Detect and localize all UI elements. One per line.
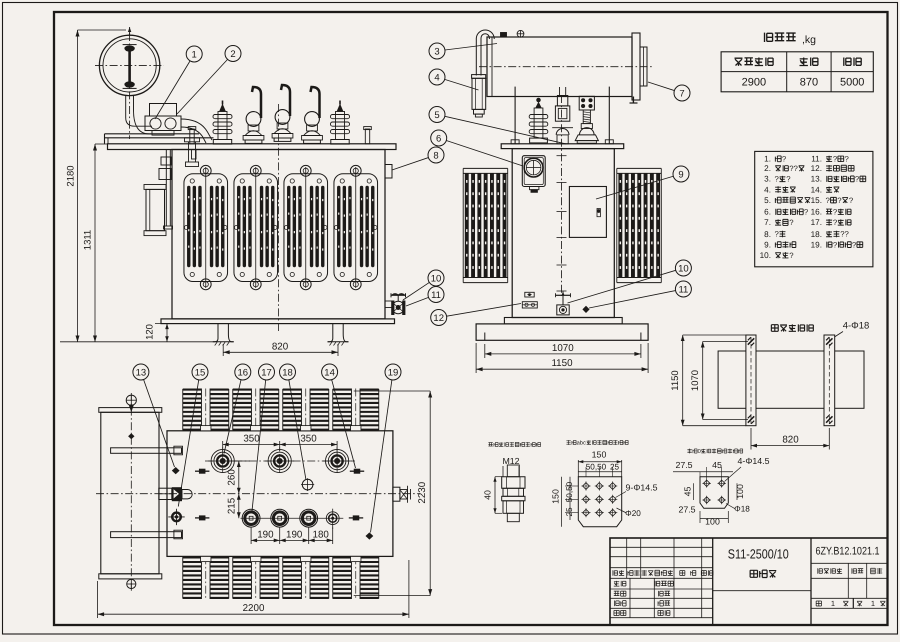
svg-text:1070: 1070 bbox=[690, 370, 701, 391]
svg-text:??: ?? bbox=[840, 230, 849, 239]
svg-text:150: 150 bbox=[551, 489, 561, 504]
svg-text:13: 13 bbox=[136, 367, 147, 378]
svg-text:6ZY.B12.1021.1: 6ZY.B12.1021.1 bbox=[816, 546, 880, 558]
svg-text:5.: 5. bbox=[764, 196, 771, 205]
svg-text:1.: 1. bbox=[764, 155, 771, 164]
svg-text:?: ? bbox=[852, 240, 857, 249]
svg-text:4: 4 bbox=[434, 72, 439, 83]
svg-text:100: 100 bbox=[705, 517, 720, 527]
svg-text:19.: 19. bbox=[811, 240, 822, 249]
svg-text:215: 215 bbox=[227, 497, 238, 514]
svg-text:14.: 14. bbox=[811, 185, 822, 194]
svg-text:8.: 8. bbox=[764, 230, 771, 239]
svg-text:?: ? bbox=[789, 218, 794, 227]
svg-text:16: 16 bbox=[238, 367, 249, 378]
svg-text:2200: 2200 bbox=[243, 603, 265, 614]
svg-text:190: 190 bbox=[257, 530, 274, 541]
svg-text:3: 3 bbox=[434, 46, 439, 57]
svg-text:19: 19 bbox=[388, 367, 399, 378]
svg-text:?: ? bbox=[833, 240, 838, 249]
svg-text:15.: 15. bbox=[811, 196, 822, 205]
svg-text:4.: 4. bbox=[764, 185, 771, 194]
svg-text:17: 17 bbox=[261, 367, 272, 378]
svg-text:?: ? bbox=[775, 230, 780, 239]
svg-text:1: 1 bbox=[871, 599, 875, 608]
svg-text:25: 25 bbox=[565, 507, 574, 517]
svg-text:6: 6 bbox=[436, 133, 441, 144]
svg-text:180: 180 bbox=[313, 530, 330, 541]
svg-text:?: ? bbox=[826, 196, 831, 205]
svg-text:2: 2 bbox=[230, 49, 235, 60]
svg-text:120: 120 bbox=[145, 324, 156, 340]
svg-text:870: 870 bbox=[800, 76, 818, 88]
svg-text:?: ? bbox=[782, 155, 787, 164]
svg-text:11: 11 bbox=[431, 290, 441, 301]
svg-text:18.: 18. bbox=[811, 230, 822, 239]
svg-text:16.: 16. bbox=[811, 208, 822, 217]
svg-text:50,50: 50,50 bbox=[586, 463, 607, 472]
svg-text:190: 190 bbox=[286, 530, 303, 541]
svg-text:15: 15 bbox=[195, 367, 206, 378]
svg-text:9-Φ14.5: 9-Φ14.5 bbox=[626, 482, 658, 492]
svg-text:1: 1 bbox=[192, 49, 197, 60]
svg-text:7: 7 bbox=[679, 88, 684, 99]
svg-text:4-Φ18: 4-Φ18 bbox=[843, 321, 870, 332]
svg-text:1311: 1311 bbox=[83, 230, 94, 250]
svg-text:1150: 1150 bbox=[551, 358, 573, 369]
svg-text:2230: 2230 bbox=[417, 481, 428, 503]
svg-text:2.: 2. bbox=[764, 164, 771, 173]
svg-text:7.: 7. bbox=[764, 218, 771, 227]
svg-text:18: 18 bbox=[282, 367, 293, 378]
svg-text:?: ? bbox=[804, 208, 809, 217]
svg-text:17.: 17. bbox=[811, 218, 822, 227]
svg-text:1150: 1150 bbox=[670, 370, 681, 390]
svg-text:6.: 6. bbox=[764, 208, 771, 217]
svg-text:?: ? bbox=[849, 196, 854, 205]
svg-text:45: 45 bbox=[712, 460, 722, 470]
svg-text:11.: 11. bbox=[811, 155, 822, 164]
svg-text:Φ18: Φ18 bbox=[734, 505, 750, 514]
svg-text:??: ?? bbox=[789, 164, 798, 173]
svg-text:25: 25 bbox=[610, 463, 620, 472]
svg-text:?: ? bbox=[855, 175, 860, 184]
svg-text:3.: 3. bbox=[764, 175, 771, 184]
svg-text:1070: 1070 bbox=[552, 343, 574, 354]
svg-text:?: ? bbox=[845, 155, 850, 164]
svg-text:?: ? bbox=[775, 175, 780, 184]
svg-text:abc: abc bbox=[577, 439, 586, 446]
svg-text:5000: 5000 bbox=[840, 76, 864, 88]
svg-text:5: 5 bbox=[434, 110, 439, 121]
svg-text:?: ? bbox=[786, 175, 791, 184]
svg-text:12.: 12. bbox=[811, 164, 822, 173]
svg-text:9.: 9. bbox=[764, 240, 771, 249]
svg-text:27.5: 27.5 bbox=[678, 505, 695, 515]
svg-text:100: 100 bbox=[735, 484, 745, 499]
svg-text:,kg: ,kg bbox=[802, 34, 816, 46]
svg-text:10: 10 bbox=[431, 273, 442, 284]
svg-text:?: ? bbox=[833, 208, 838, 217]
svg-text:2180: 2180 bbox=[66, 165, 77, 186]
svg-text:350: 350 bbox=[300, 434, 317, 445]
svg-text:?: ? bbox=[837, 196, 842, 205]
svg-text:10: 10 bbox=[678, 263, 689, 274]
svg-text:8: 8 bbox=[433, 150, 438, 161]
svg-text:45: 45 bbox=[683, 487, 693, 497]
svg-text:2900: 2900 bbox=[742, 76, 766, 88]
svg-text:0: 0 bbox=[698, 449, 701, 455]
svg-text:820: 820 bbox=[782, 435, 799, 446]
svg-text:9: 9 bbox=[678, 169, 683, 180]
svg-text:350: 350 bbox=[243, 434, 260, 445]
svg-text:260: 260 bbox=[227, 469, 238, 486]
svg-text:?: ? bbox=[789, 251, 794, 260]
svg-text:4-Φ14.5: 4-Φ14.5 bbox=[738, 456, 770, 466]
svg-text:150: 150 bbox=[592, 450, 607, 460]
svg-text:?: ? bbox=[833, 155, 838, 164]
svg-text:?: ? bbox=[833, 218, 838, 227]
svg-text:27.5: 27.5 bbox=[675, 460, 692, 470]
svg-text:S11-2500/10: S11-2500/10 bbox=[728, 547, 789, 562]
svg-text:1: 1 bbox=[831, 599, 835, 608]
svg-text:13.: 13. bbox=[811, 175, 822, 184]
svg-text:M12: M12 bbox=[502, 456, 519, 466]
svg-text:11: 11 bbox=[678, 284, 688, 295]
svg-text:820: 820 bbox=[272, 341, 289, 352]
svg-text:Φ20: Φ20 bbox=[625, 509, 641, 518]
svg-text:14: 14 bbox=[324, 367, 335, 378]
svg-text:10.: 10. bbox=[760, 251, 771, 260]
svg-text:40: 40 bbox=[483, 490, 493, 500]
svg-text:12: 12 bbox=[433, 313, 444, 324]
